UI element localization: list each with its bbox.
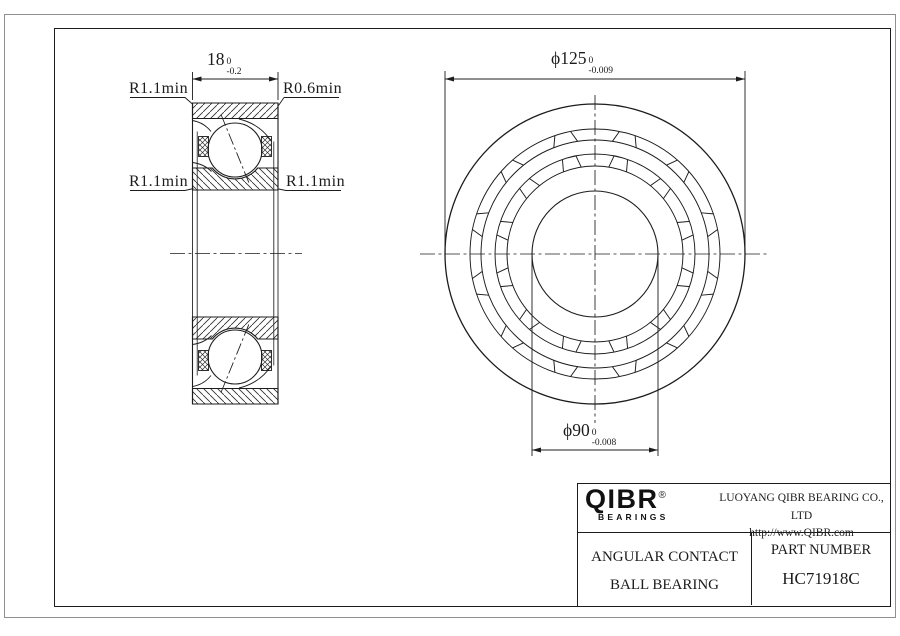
fillet-note-top-left: R1.1min xyxy=(129,80,188,98)
registered-trademark-icon: ® xyxy=(659,490,666,501)
ball xyxy=(208,123,262,177)
part-number-label: PART NUMBER xyxy=(752,542,890,559)
section-upper-half xyxy=(193,103,279,190)
part-number-cell: PART NUMBER HC71918C xyxy=(751,533,890,605)
part-number-value: HC71918C xyxy=(752,569,890,589)
product-name: ANGULAR CONTACT BALL BEARING xyxy=(578,533,751,605)
drawing-sheet: 180-0.2 R1.1min R0.6min R1.1min R1.1min … xyxy=(0,0,900,636)
product-line1: ANGULAR CONTACT xyxy=(578,543,751,571)
logo-subtext: BEARINGS xyxy=(598,512,713,522)
product-line2: BALL BEARING xyxy=(578,571,751,599)
title-block: QIBR® BEARINGS LUOYANG QIBR BEARING CO.,… xyxy=(577,483,891,607)
company-info: LUOYANG QIBR BEARING CO., LTD http://www… xyxy=(713,484,890,532)
cage-section xyxy=(262,137,272,157)
bearing-cross-section xyxy=(170,103,302,404)
logo-text: QIBR xyxy=(585,484,659,514)
bore-diameter-text: ϕ900-0.008 xyxy=(563,420,616,448)
outer-diameter-text: ϕ1250-0.009 xyxy=(551,48,613,76)
fillet-note-mid-left: R1.1min xyxy=(129,173,188,191)
cage-section xyxy=(199,137,209,157)
width-dimension-text: 180-0.2 xyxy=(207,49,242,77)
fillet-note-top-right: R0.6min xyxy=(283,80,342,98)
fillet-note-mid-right: R1.1min xyxy=(286,173,345,191)
company-logo: QIBR® BEARINGS xyxy=(578,484,713,532)
company-name: LUOYANG QIBR BEARING CO., LTD xyxy=(713,490,890,525)
bearing-front-view xyxy=(420,95,770,423)
